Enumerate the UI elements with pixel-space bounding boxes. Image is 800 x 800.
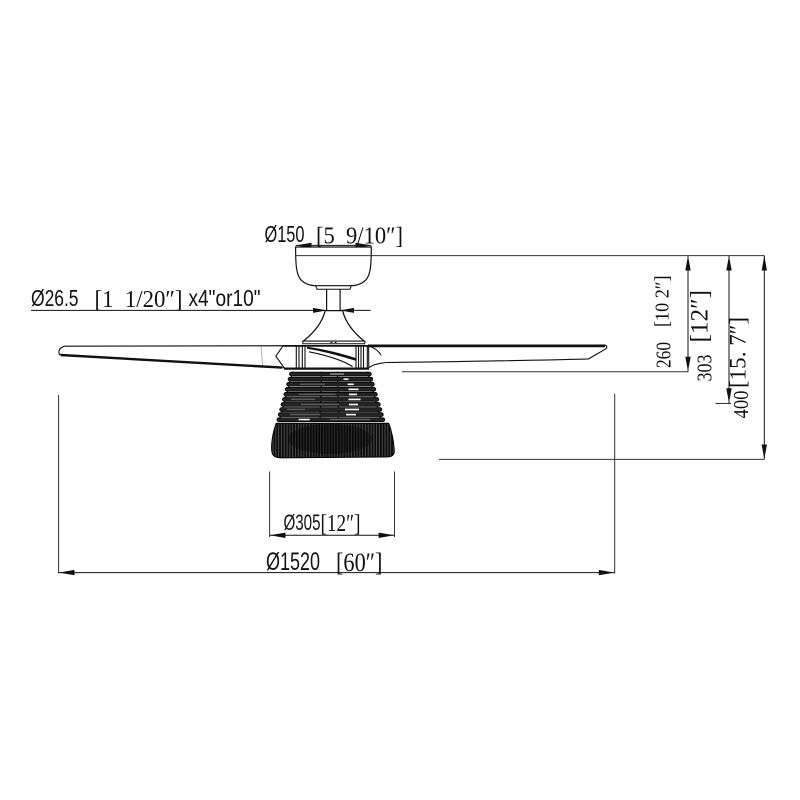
svg-text:Ø26.5: Ø26.5	[31, 285, 79, 311]
svg-text:260: 260	[652, 342, 676, 368]
svg-text:Ø150: Ø150	[265, 221, 305, 247]
svg-text:400: 400	[729, 391, 753, 419]
svg-text:[10 2″]: [10 2″]	[652, 276, 674, 328]
svg-text:[12″]: [12″]	[687, 290, 714, 343]
svg-text:[12″]: [12″]	[321, 511, 361, 537]
svg-text:[1 1/20″]: [1 1/20″]	[95, 287, 183, 313]
svg-text:303: 303	[693, 355, 717, 382]
svg-text:[60″]: [60″]	[336, 548, 383, 577]
svg-text:[15. 7″]: [15. 7″]	[726, 317, 751, 388]
svg-text:Ø305: Ø305	[284, 510, 321, 535]
svg-text:x4"or10": x4"or10"	[189, 285, 261, 311]
svg-text:Ø1520: Ø1520	[266, 548, 320, 576]
